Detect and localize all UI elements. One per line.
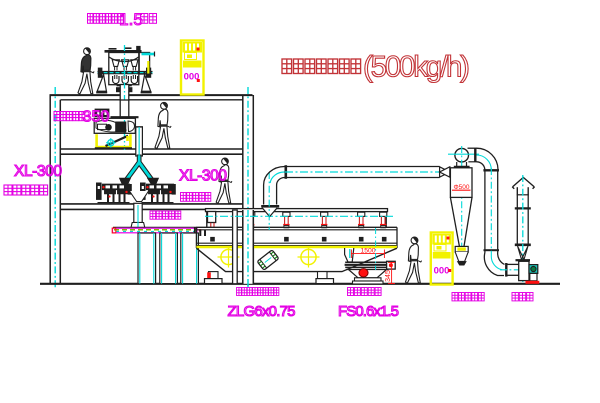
svg-text:000: 000 [434,266,450,277]
svg-text:FS0.6x1.5: FS0.6x1.5 [338,303,399,320]
svg-text:XL-300: XL-300 [179,168,227,185]
svg-text:(500kg/h): (500kg/h) [363,51,470,84]
svg-text:350: 350 [83,109,110,126]
svg-text:Φ500: Φ500 [453,184,469,191]
svg-text:1.5: 1.5 [119,10,143,29]
svg-text:345: 345 [385,270,392,282]
svg-text:1500: 1500 [360,248,375,255]
svg-text:XL-300: XL-300 [14,163,62,180]
svg-text:ZLG6x0.75: ZLG6x0.75 [228,303,296,320]
